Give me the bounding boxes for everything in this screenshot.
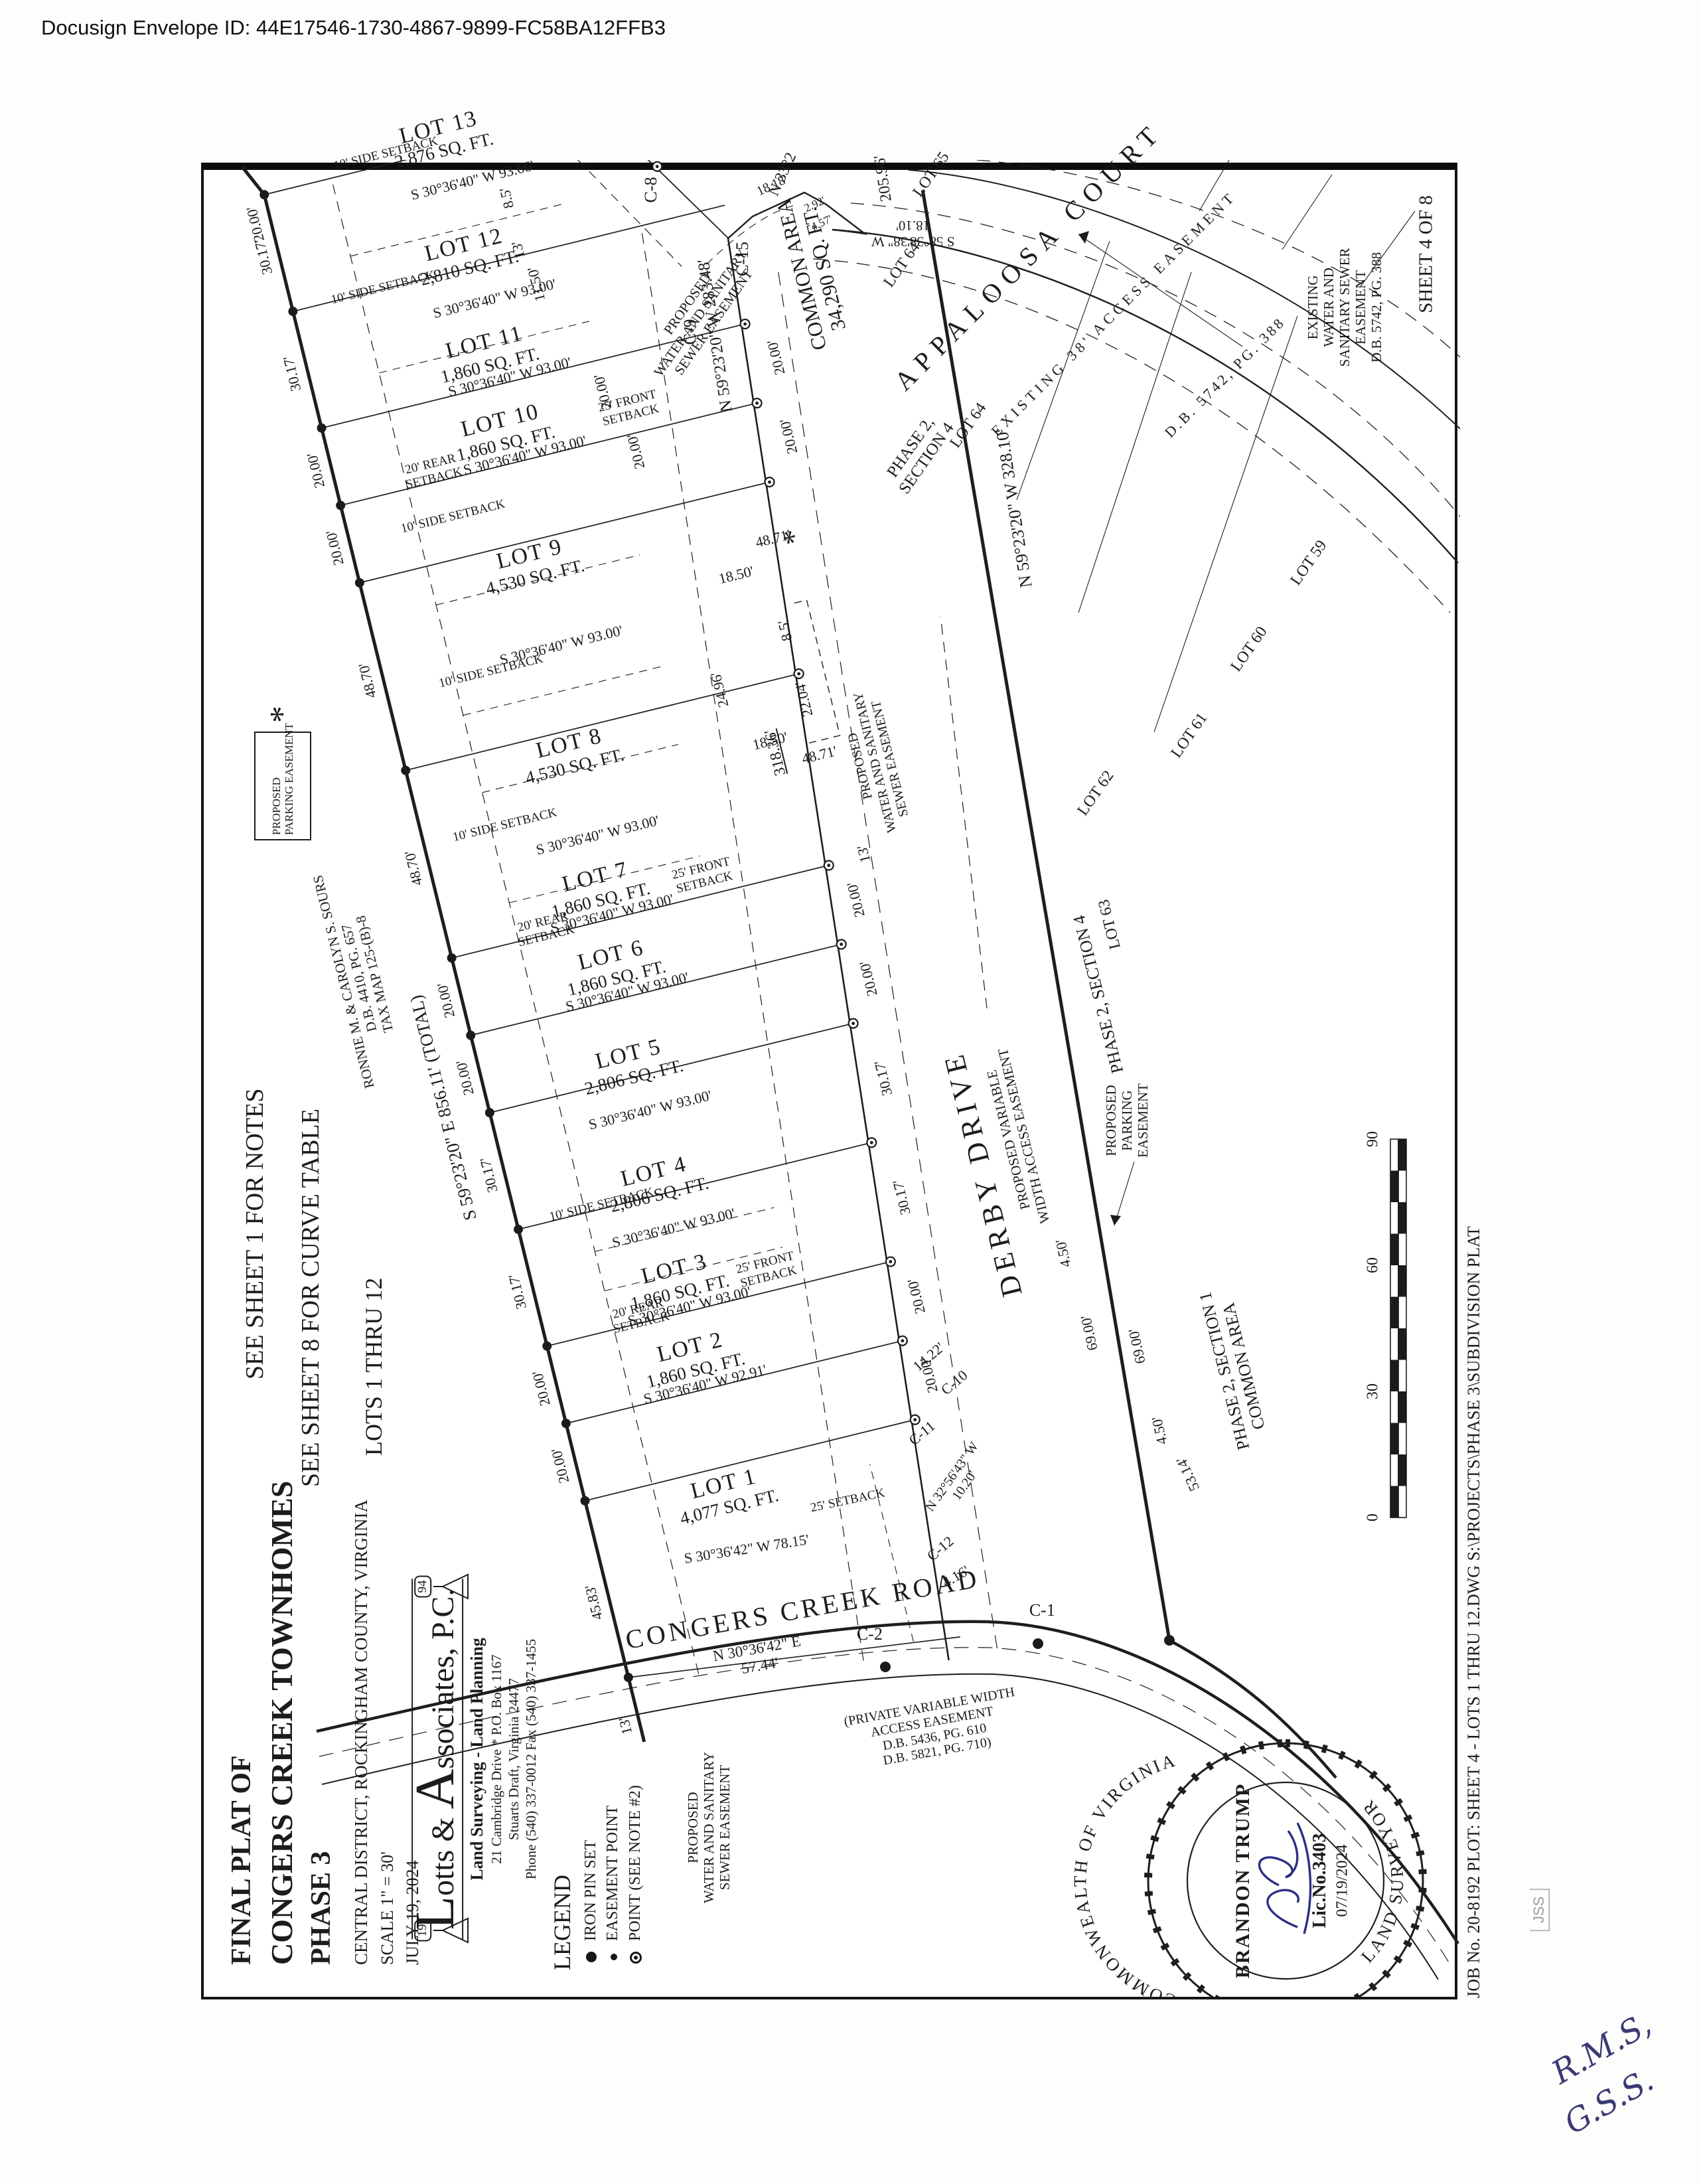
proposed-ws-easement-congers: PROPOSED WATER AND SANITARY SEWER EASEME…	[686, 1752, 733, 1903]
adjacent-lot-lines	[1017, 241, 1297, 732]
title-scale: SCALE 1" = 30'	[378, 1851, 398, 1965]
scale-60: 60	[1364, 1257, 1382, 1273]
firm-est-right: 94	[414, 1576, 431, 1598]
legend-title: LEGEND	[549, 1875, 576, 1970]
plat-scan-page: Docusign Envelope ID: 44E17546-1730-4867…	[0, 0, 1699, 2184]
title-line2: CONGERS CREEK TOWNHOMES	[265, 1481, 299, 1965]
easement-point-symbol	[611, 1954, 617, 1960]
firm-name: Lotts & Associates, P.C.	[411, 1579, 463, 1940]
curve-c8: C-8	[641, 177, 661, 203]
parking-box-line2: PARKING EASEMENT	[283, 723, 295, 835]
svg-text:COMMONWEALTH OF VIRGINIA: COMMONWEALTH OF VIRGINIA	[1070, 1750, 1179, 1997]
firm-addr1: 21 Cambridge Drive * P.O. Box 1167	[489, 1654, 505, 1863]
seal-arc-top: COMMONWEALTH OF VIRGINIA	[1070, 1750, 1179, 1997]
surveyor-signature	[1259, 1823, 1310, 1934]
point-symbol-dot	[634, 1956, 638, 1960]
curve-c2: C-2	[857, 1624, 883, 1644]
asterisk-symbol: *	[276, 706, 289, 723]
firm-tagline: Land Surveying - Land Planning	[467, 1638, 487, 1881]
parking-easement-legend-box: PROPOSED PARKING EASEMENT *	[254, 732, 311, 840]
firm-addr3: Phone (540) 337-0012 Fax (540) 337-1455	[524, 1639, 540, 1879]
job-number-line: JOB No. 20-8192 PLOT: SHEET 4 - LOTS 1 T…	[1464, 1155, 1493, 1998]
legend-item-1: IRON PIN SET	[582, 1840, 600, 1941]
existing-ws-easement-label: EXISTING WATER AND SANITARY SEWER EASEME…	[1305, 248, 1385, 367]
corner-cut-line	[599, 160, 728, 261]
note-sheet8: SEE SHEET 8 FOR CURVE TABLE	[297, 1109, 325, 1487]
plat-sheet: COMMONWEALTH OF VIRGINIA LAND SURVEYOR F…	[201, 163, 1457, 1999]
seal-license: Lic.No.3403	[1309, 1833, 1331, 1928]
curve-c1: C-1	[1029, 1600, 1055, 1620]
firm-initial-a: A	[404, 1769, 466, 1810]
firm-addr2: Stuarts Draft, Virginia 24477	[506, 1678, 522, 1840]
firm-est-left: 19	[414, 1920, 431, 1942]
parking-easement-label: PROPOSED PARKING EASEMENT	[1104, 1083, 1151, 1158]
jss-stamp: JSS	[1530, 1889, 1550, 1931]
title-line3: PHASE 3	[306, 1851, 338, 1965]
sheet-number: SHEET 4 OF 8	[1415, 195, 1437, 313]
scale-bar	[1390, 1139, 1406, 1518]
title-location: CENTRAL DISTRICT, ROCKINGHAM COUNTY, VIR…	[351, 1500, 372, 1965]
surveyor-seal	[1148, 1743, 1423, 1997]
docusign-envelope-id: Docusign Envelope ID: 44E17546-1730-4867…	[41, 16, 666, 40]
iron-pin-symbol	[586, 1952, 597, 1962]
legend-item-3: POINT (SEE NOTE #2)	[627, 1785, 644, 1941]
note-lots: LOTS 1 THRU 12	[360, 1278, 388, 1456]
note-sheet1: SEE SHEET 1 FOR NOTES	[241, 1089, 269, 1379]
firm-initial-l: L	[404, 1896, 466, 1930]
seal-date: 07/19/2024	[1333, 1844, 1351, 1916]
scale-90: 90	[1364, 1131, 1382, 1147]
bearing-s58: S 58°38'38" W 18.10'	[871, 217, 954, 249]
scale-0: 0	[1364, 1514, 1382, 1521]
title-line1: FINAL PLAT OF	[226, 1755, 258, 1965]
seal-surveyor-name: BRANDON TRUMP	[1232, 1783, 1254, 1979]
parking-box-line1: PROPOSED	[270, 723, 283, 835]
legend-item-2: EASEMENT POINT	[604, 1806, 622, 1941]
scale-30: 30	[1364, 1383, 1382, 1399]
boundary-connector	[1169, 1640, 1336, 1778]
